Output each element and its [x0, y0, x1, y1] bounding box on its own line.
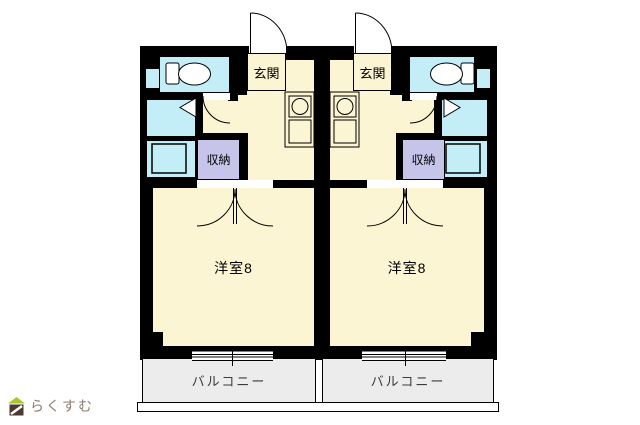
unit1-pipe-space: [146, 69, 159, 88]
unit1-entrance-label: 玄関: [253, 63, 279, 82]
unit2-room-label: 洋室8: [330, 258, 484, 278]
unit1-washroom-opening: [203, 93, 230, 100]
unit2-washroom-opening: [410, 93, 437, 100]
unit1-room-label: 洋室8: [153, 258, 314, 278]
pillar-bottom-left: [140, 332, 163, 360]
unit1-entrance: 玄関: [247, 53, 286, 91]
unit1-toilet-room: [159, 56, 230, 93]
unit2-entrance-label: 玄関: [359, 63, 385, 82]
unit1-room-door-opening: [197, 180, 273, 188]
wall-unit2-entry-side: [390, 53, 409, 95]
unit1-balcony: バルコニー: [142, 358, 316, 403]
unit1-closet: 収納: [197, 139, 240, 180]
unit1-bathroom: [146, 140, 196, 178]
unit1-washroom: [146, 99, 196, 137]
unit2-bathroom: [441, 140, 488, 178]
house-logo-icon: [8, 397, 25, 416]
unit2-closet-label: 収納: [411, 151, 435, 168]
floorplan: 収納 収納 玄関 玄関 バルコニー バルコニー 洋室8 洋室8: [0, 0, 640, 425]
wall-unit1-entry-side: [230, 53, 247, 95]
watermark: らくすむ: [8, 396, 94, 416]
wall-center: [314, 46, 330, 352]
pillar-bottom-right: [471, 332, 497, 360]
balcony-outer-edge: [137, 402, 499, 412]
watermark-text: らくすむ: [30, 396, 94, 416]
unit2-entrance: 玄関: [353, 53, 392, 91]
unit2-pipe-space: [477, 69, 490, 88]
unit1-balcony-label: バルコニー: [192, 371, 267, 390]
unit1-closet-label: 収納: [206, 151, 230, 168]
unit2-toilet-room: [409, 56, 475, 93]
unit2-closet: 収納: [402, 139, 445, 180]
unit2-room-door-opening: [367, 180, 443, 188]
unit2-washroom: [441, 99, 488, 137]
unit2-balcony-label: バルコニー: [371, 371, 446, 390]
unit2-balcony: バルコニー: [322, 358, 494, 403]
